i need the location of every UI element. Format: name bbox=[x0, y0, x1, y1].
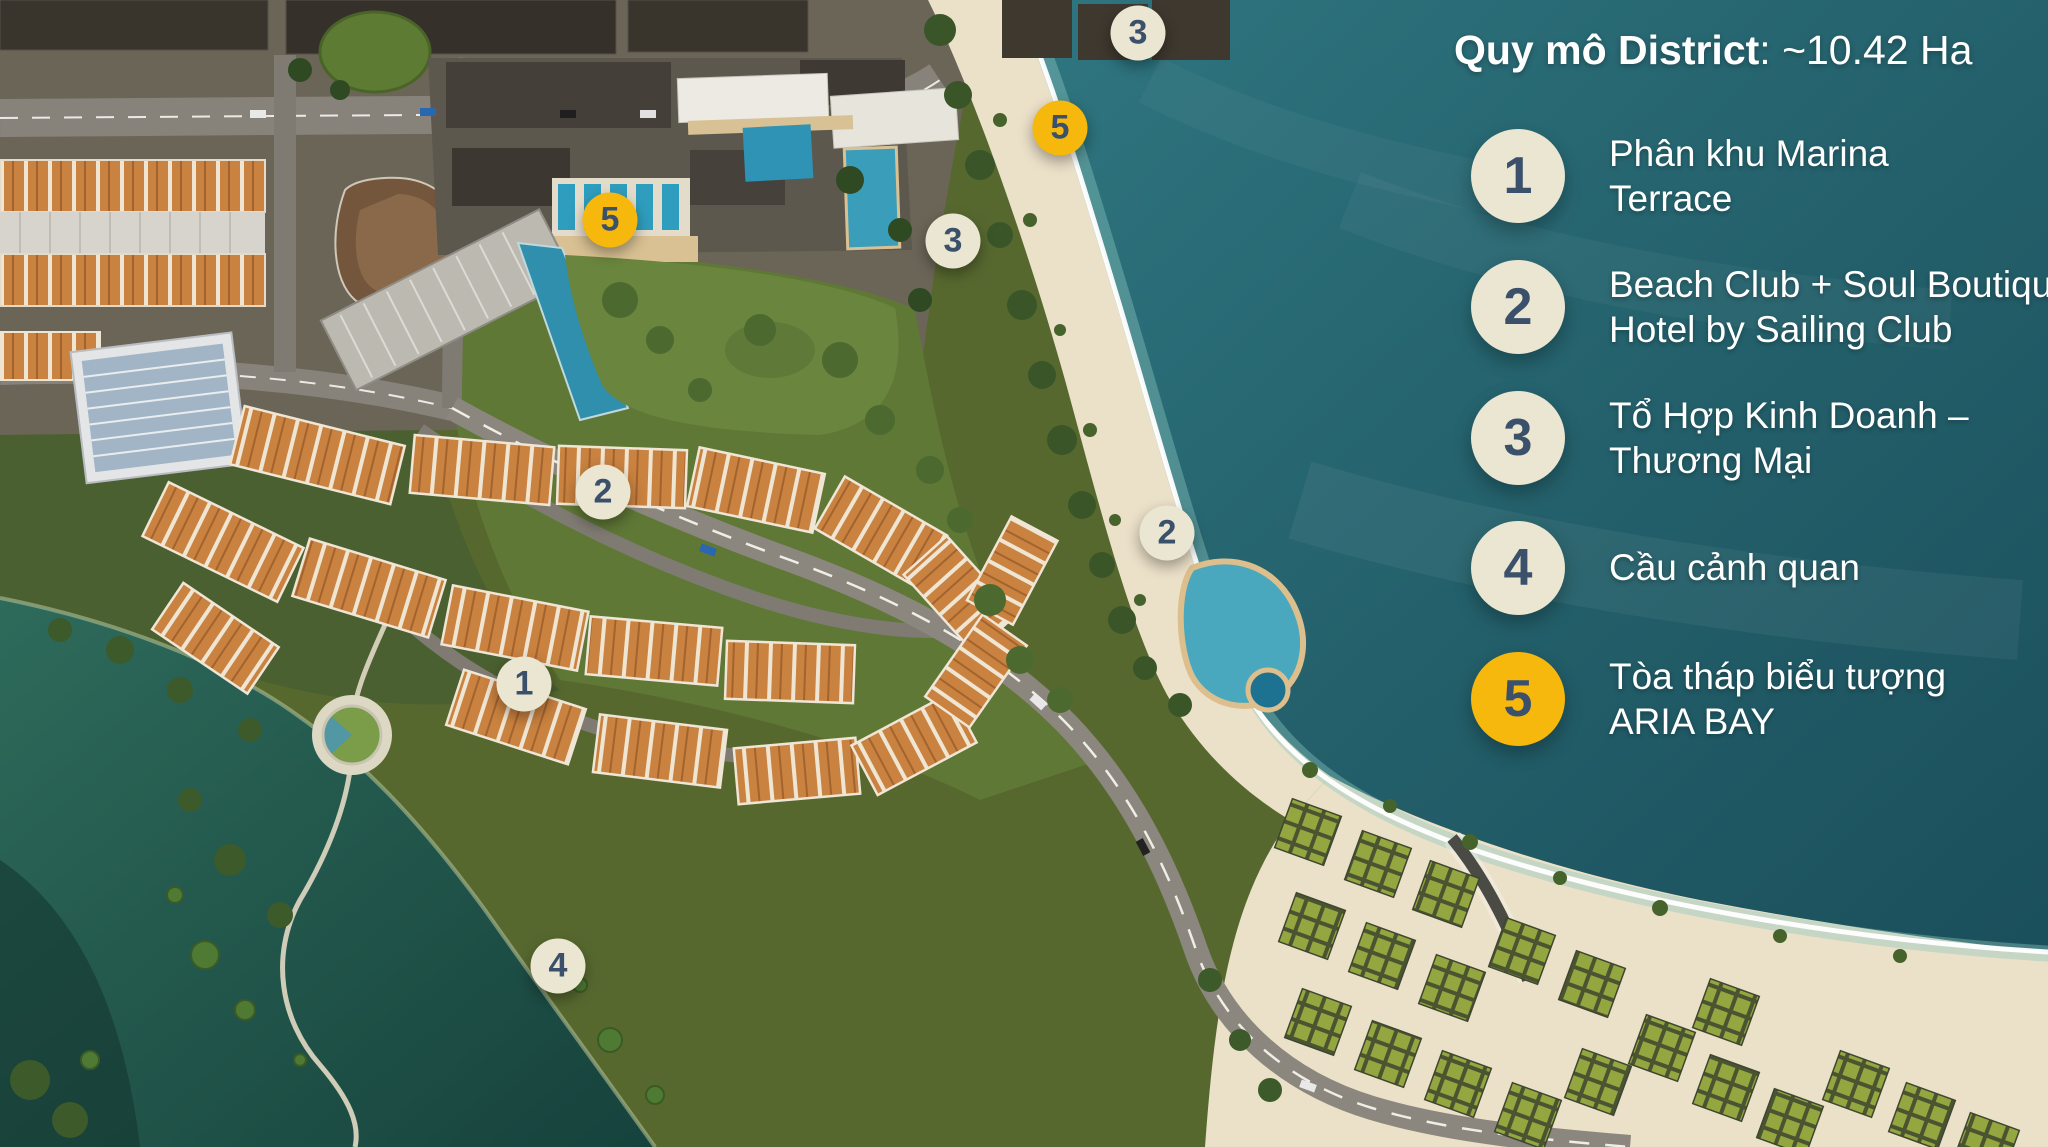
legend-title: Quy mô District: ~10.42 Ha bbox=[1454, 27, 1972, 74]
marker-number: 3 bbox=[1129, 14, 1148, 53]
map-marker-2[interactable]: 2 bbox=[576, 465, 631, 520]
marker-number: 5 bbox=[1051, 109, 1070, 148]
masterplan-map: 3 5 3 5 2 2 1 4 Quy mô District: ~10.42 … bbox=[0, 0, 2048, 1147]
legend-title-bold: Quy mô District bbox=[1454, 27, 1759, 73]
marker-layer: 3 5 3 5 2 2 1 4 bbox=[0, 0, 2048, 1147]
marker-number: 2 bbox=[1158, 514, 1177, 553]
map-marker-5[interactable]: 5 bbox=[1033, 101, 1088, 156]
marker-number: 5 bbox=[601, 201, 620, 240]
map-marker-3[interactable]: 3 bbox=[926, 214, 981, 269]
map-marker-1[interactable]: 1 bbox=[497, 657, 552, 712]
marker-number: 1 bbox=[515, 665, 534, 704]
marker-number: 4 bbox=[549, 947, 568, 986]
marker-number: 3 bbox=[944, 222, 963, 261]
map-marker-2[interactable]: 2 bbox=[1140, 506, 1195, 561]
map-marker-4[interactable]: 4 bbox=[531, 939, 586, 994]
legend-title-value: : ~10.42 Ha bbox=[1759, 27, 1972, 73]
map-marker-5[interactable]: 5 bbox=[583, 193, 638, 248]
marker-number: 2 bbox=[594, 473, 613, 512]
map-marker-3[interactable]: 3 bbox=[1111, 6, 1166, 61]
